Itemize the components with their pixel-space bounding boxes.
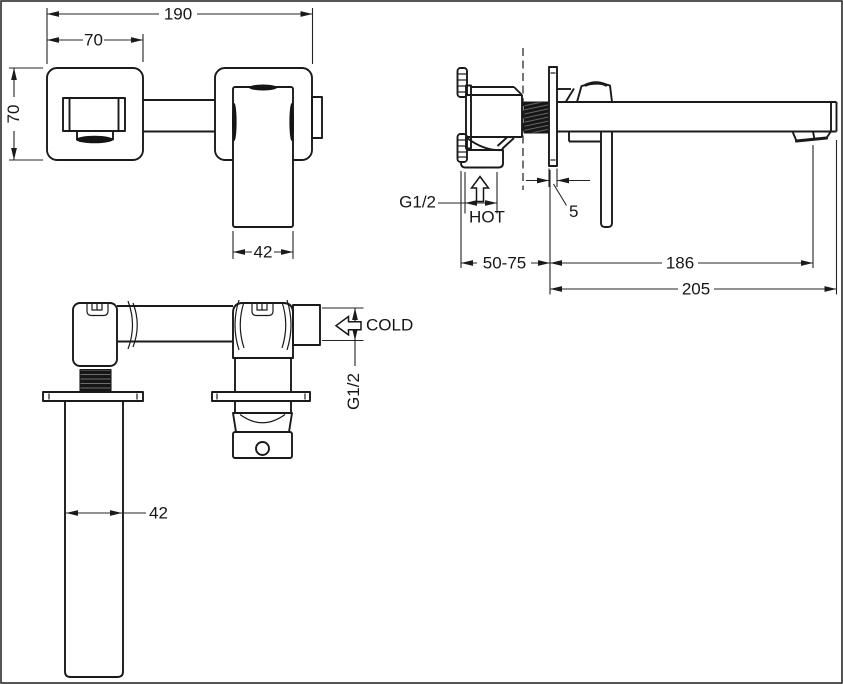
spout-wall-plate-front	[47, 68, 143, 160]
dim-overall-depth: 205	[682, 280, 710, 299]
front-view	[47, 68, 322, 227]
lever-handle-side	[601, 132, 612, 228]
spout-valve-bottom	[73, 303, 117, 366]
spout-side	[557, 102, 837, 132]
hot-label: HOT	[469, 208, 505, 227]
spout-bottom	[65, 401, 123, 677]
aerator-outlet	[76, 136, 113, 144]
side-view-dimensions: G1/2 HOT 5 50-75 186 205	[399, 140, 836, 299]
set-screw-hole	[256, 442, 269, 455]
dim-plate-height: 70	[4, 105, 23, 124]
spout-front	[63, 98, 125, 131]
dim-inlet-thread-hot: G1/2	[399, 193, 436, 212]
bottom-view	[43, 300, 320, 677]
dim-spout-reach: 186	[666, 254, 694, 273]
cold-inlet-port	[293, 305, 320, 345]
cold-label: COLD	[366, 316, 413, 335]
side-view	[458, 48, 837, 227]
bottom-view-dimensions: 42 COLD G1/2	[66, 308, 413, 523]
lever-handle-front	[233, 87, 293, 227]
dim-overall-width: 190	[164, 5, 192, 24]
aerator-side	[793, 132, 831, 142]
dim-plate-width: 70	[84, 31, 103, 50]
threaded-shank	[80, 370, 111, 393]
dim-spout-width: 42	[149, 504, 168, 523]
escutcheon-plate-side	[549, 67, 557, 166]
escutcheon-plate-handle	[212, 392, 310, 401]
threaded-connector	[524, 102, 549, 133]
lever-hub-side	[577, 84, 612, 102]
plate-side-tab	[312, 97, 322, 138]
faucet-installation-drawing: 190 70 70 42	[0, 0, 843, 684]
technical-drawing-page: 190 70 70 42	[0, 0, 843, 684]
hot-flow-arrow	[472, 177, 489, 202]
dim-inlet-thread-cold: G1/2	[344, 373, 363, 410]
dim-plate-thickness: 5	[569, 202, 578, 221]
dim-handle-width: 42	[254, 243, 273, 262]
dim-wall-distance: 50-75	[483, 254, 526, 273]
escutcheon-plate-spout	[43, 392, 143, 401]
cold-flow-arrow	[336, 317, 361, 335]
